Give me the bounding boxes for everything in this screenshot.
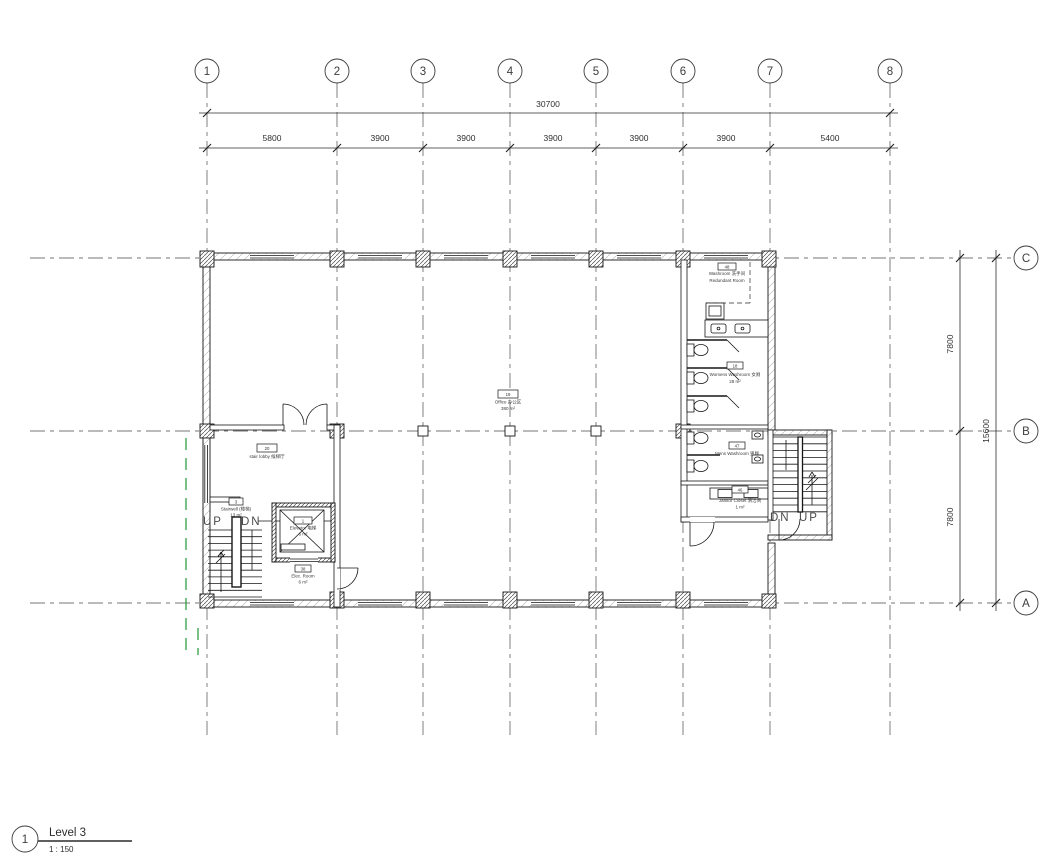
room-area: 13 m² [230,513,242,518]
room-area: 380 m² [501,406,516,411]
window [531,254,575,259]
room-tag: 18 [733,363,738,368]
column [762,251,776,267]
dimension-right: 7800 7800 15600 [945,250,1000,611]
room-name-2: Redundant Room [709,278,745,283]
room-name: Janitor Closet 清洁间 [719,497,762,504]
room-label-elec-room: 38 Elec. Room 6 m² [291,565,315,585]
toilet [687,400,708,412]
dim-right-overall: 15600 [981,419,991,443]
elec-room-door [335,568,358,590]
vanity-counter [705,303,768,337]
dim-bay-2: 3900 [371,133,390,143]
window [444,601,488,606]
tower-wall-left [768,430,773,520]
room-tag: 19 [506,392,511,397]
structural-columns [200,251,776,608]
room-name: stair lobby 候梯厅 [249,453,285,460]
grid-bubble-A-label: A [1022,598,1030,610]
column [589,251,603,267]
column [503,592,517,608]
stair-rail [232,517,241,587]
window [704,254,748,259]
sink [711,324,726,333]
green-dashed-line [186,438,198,655]
dim-bay-6: 3900 [717,133,736,143]
dim-right-1: 7800 [945,334,955,353]
grid-bubble-3-label: 3 [420,66,426,78]
grid-bubbles-top: 1 2 3 4 5 6 7 8 [195,59,902,83]
room-name: Womens Washroom 女厕 [710,371,761,378]
urinal [752,455,763,463]
grid-bubble-B-label: B [1022,426,1030,438]
column [762,594,776,608]
column [418,426,428,436]
view-title-number: 1 [22,834,28,846]
dim-bay-7: 5400 [821,133,840,143]
grid-bubble-1-label: 1 [204,66,210,78]
room-name: Washroom 洗手间 [709,270,746,277]
room-label-stair-lobby: 20 stair lobby 候梯厅 [249,444,285,460]
dim-bay-3: 3900 [457,133,476,143]
grid-bubble-4-label: 4 [507,66,514,78]
column [330,251,344,267]
window [358,254,402,259]
stair-right-up-label: UP [799,512,819,524]
wall-washroom-low [681,481,768,485]
grid-lines [30,83,1014,735]
dimension-top: 30700 5800 3900 3900 3900 3900 3900 5400 [199,99,898,152]
grid-bubble-6-label: 6 [680,66,686,78]
dim-bay-5: 3900 [630,133,649,143]
view-title-name: Level 3 [49,827,86,839]
room-tag: 46 [738,487,743,492]
room-tag: 38 [301,566,306,571]
column [676,592,690,608]
elevator-door-opening [290,557,318,563]
double-door [283,404,327,425]
urinal [752,431,763,439]
room-name: Elec. Room [291,574,315,579]
toilet [687,372,708,384]
stair-treads-right [773,437,827,512]
stair-rail [798,437,803,512]
dim-bay-1: 5800 [263,133,282,143]
building-shell [200,251,776,608]
tower-wall-right [827,430,832,540]
dim-bay-4: 3900 [544,133,563,143]
column [416,592,430,608]
window [444,254,488,259]
room-name: Office 办公区 [495,399,522,406]
grid-bubble-5-label: 5 [593,66,599,78]
room-label-womens-washroom: 18 Womens Washroom 女厕 28 m² [710,362,761,384]
window [250,601,294,606]
wall-lobby-top-left [210,425,284,430]
toilet [687,432,708,444]
tower-wall-bottom [768,535,832,540]
column [591,426,601,436]
room-tag: 48 [725,264,730,269]
elevator-counterweight [281,544,305,550]
column [589,592,603,608]
room-tag: 47 [735,443,740,448]
room-label-washroom-redundant: 48 Washroom 洗手间 Redundant Room [709,263,746,283]
stair-tower-right: DN UP [768,430,832,540]
grid-bubble-8-label: 8 [887,66,893,78]
toilet [687,344,708,356]
washroom-door [690,517,715,546]
dim-right-2: 7800 [945,507,955,526]
window [704,601,748,606]
grid-bubble-C-label: C [1022,253,1030,265]
column [416,251,430,267]
left-core: UP DN [203,404,358,607]
room-area: 1 m² [736,505,746,510]
grid-bubble-7-label: 7 [767,66,773,78]
window [617,601,661,606]
room-area: 6 m² [299,580,309,585]
window [250,254,294,259]
window [358,601,402,606]
sink [735,324,750,333]
dim-top-overall: 30700 [536,99,560,109]
room-label-office: 19 Office 办公区 380 m² [495,390,522,411]
room-name: Stairwell (楼梯) [221,506,252,513]
column [503,251,517,267]
room-area: 28 m² [729,379,741,384]
window [531,601,575,606]
stair-right-dn-label: DN [770,512,791,524]
wall-washroom-mid [681,425,768,429]
room-label-mens-washroom: 47 Mens Washroom 男厕 [715,442,760,457]
grid-bubble-2-label: 2 [334,66,340,78]
stair-left-up-label: UP [203,516,223,528]
floor-plan-drawing: 1 2 3 4 5 6 7 8 C B A 30700 [0,0,1045,867]
grid-bubbles-right: C B A [1014,246,1038,615]
window-left [204,445,210,503]
view-title-scale: 1 : 150 [49,845,74,854]
stair-left-dn-label: DN [241,516,262,528]
view-title: 1 Level 3 1 : 150 [12,826,132,854]
wall-right-upper [768,253,775,433]
room-name: Elevator 电梯 [290,525,317,532]
tower-wall-top [768,430,832,435]
column [505,426,515,436]
room-area: 6 m² [299,532,309,537]
floor-plan-sheet: 1 2 3 4 5 6 7 8 C B A 30700 [0,0,1045,867]
washroom-block [681,260,768,546]
basin [718,490,732,498]
column [200,251,214,267]
window [617,254,661,259]
room-tag: 20 [265,446,270,451]
toilet [687,460,708,472]
column [200,594,214,608]
